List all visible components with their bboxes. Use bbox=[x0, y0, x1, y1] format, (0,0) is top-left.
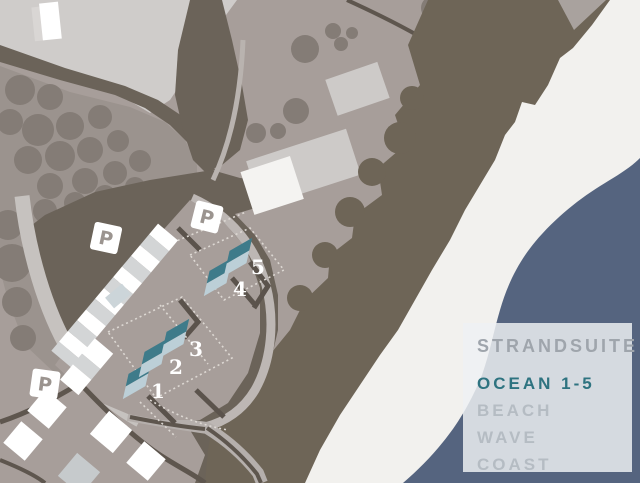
unit-label-4: 4 bbox=[233, 277, 247, 301]
unit-label-2: 2 bbox=[169, 355, 183, 379]
unit-label-3: 3 bbox=[189, 337, 203, 361]
legend-item-ocean[interactable]: OCEAN 1-5 bbox=[477, 374, 624, 394]
legend-item-wave[interactable]: WAVE bbox=[477, 428, 624, 448]
legend-item-beach[interactable]: BEACH bbox=[477, 401, 624, 421]
unit-label-5: 5 bbox=[251, 255, 265, 279]
legend-item-coast[interactable]: COAST bbox=[477, 455, 624, 475]
unit-label-1: 1 bbox=[151, 379, 165, 403]
small-building-top-left bbox=[31, 2, 62, 42]
legend-title: STRANDSUITE bbox=[477, 336, 624, 357]
parking-sign-2[interactable]: P bbox=[89, 221, 122, 254]
site-plan: 1 2 3 4 5 P P P STRANDSUITE OCEAN 1-5 BE… bbox=[0, 0, 640, 483]
legend-panel: STRANDSUITE OCEAN 1-5 BEACH WAVE COAST bbox=[463, 323, 632, 472]
